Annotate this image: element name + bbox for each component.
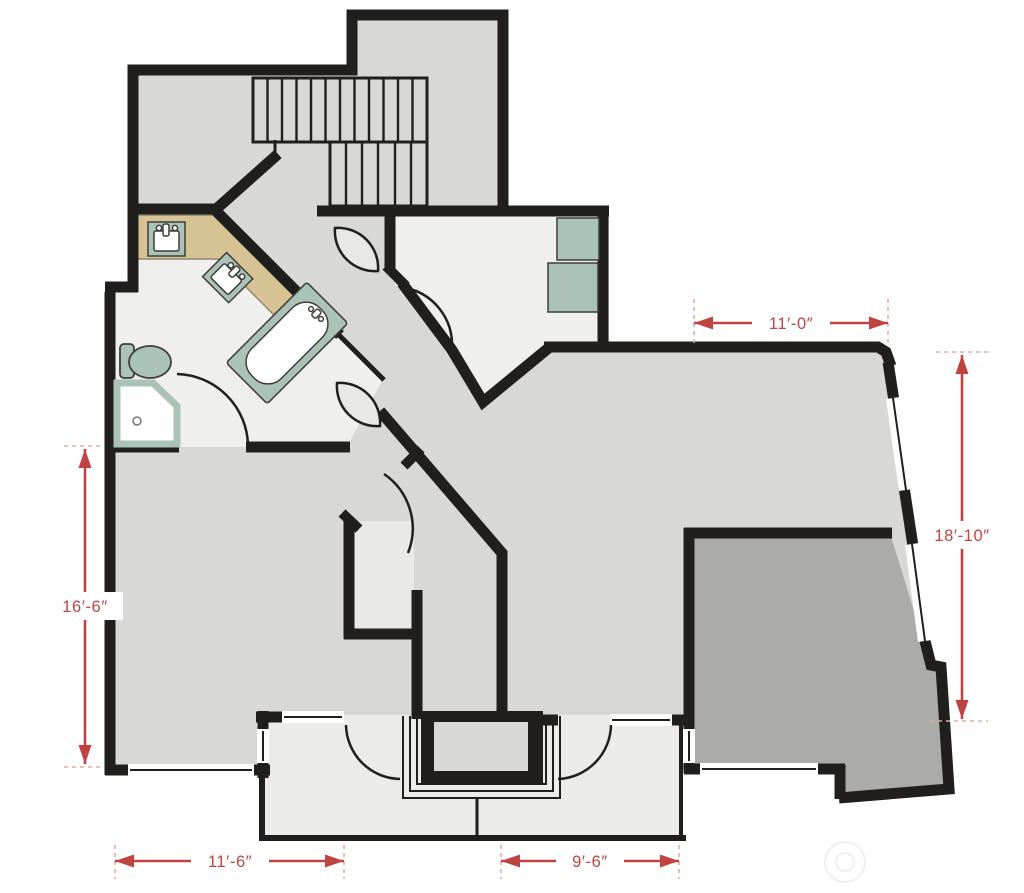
dimension-upper-right-width: 11′-0″ (694, 309, 888, 337)
built-in-square-bottom (548, 263, 598, 312)
arrow-up-icon (956, 355, 969, 374)
arrow-right-icon (869, 317, 888, 330)
arrow-left-icon (115, 855, 134, 868)
dimension-label: 18′-10″ (934, 527, 989, 545)
arrow-right-icon (325, 855, 344, 868)
arrow-up-icon (79, 449, 92, 468)
dimension-label: 11′-0″ (769, 315, 813, 333)
arrow-left-icon (501, 855, 520, 868)
dimension-label: 9′-6″ (572, 853, 608, 871)
floor-plan-canvas: 11′-0″ 18′-10″ 16′-6″ 11′-6″ (0, 0, 1024, 893)
dimension-bottom-left-width: 11′-6″ (115, 847, 344, 875)
dimension-bottom-right-width: 9′-6″ (501, 847, 679, 875)
floor-plan-page: 11′-0″ 18′-10″ 16′-6″ 11′-6″ (0, 0, 1024, 893)
toilet-bowl (129, 346, 171, 378)
dimension-label: 16′-6″ (62, 598, 108, 616)
dimension-label: 11′-6″ (208, 853, 252, 871)
toilet (120, 344, 171, 378)
fireplace-firebox (434, 722, 528, 771)
watermark-circle (825, 842, 865, 882)
floor-closet (351, 521, 414, 632)
arrow-right-icon (660, 855, 679, 868)
arrow-down-icon (79, 745, 92, 764)
arrow-down-icon (956, 700, 969, 719)
fireplace (403, 711, 560, 798)
wall-angled-seg1 (888, 362, 894, 401)
arrow-left-icon (694, 317, 713, 330)
faucet-icon (163, 224, 169, 236)
shower-drain (133, 417, 141, 425)
built-in-square-top (557, 218, 599, 260)
vanity-sink-left (148, 222, 185, 256)
